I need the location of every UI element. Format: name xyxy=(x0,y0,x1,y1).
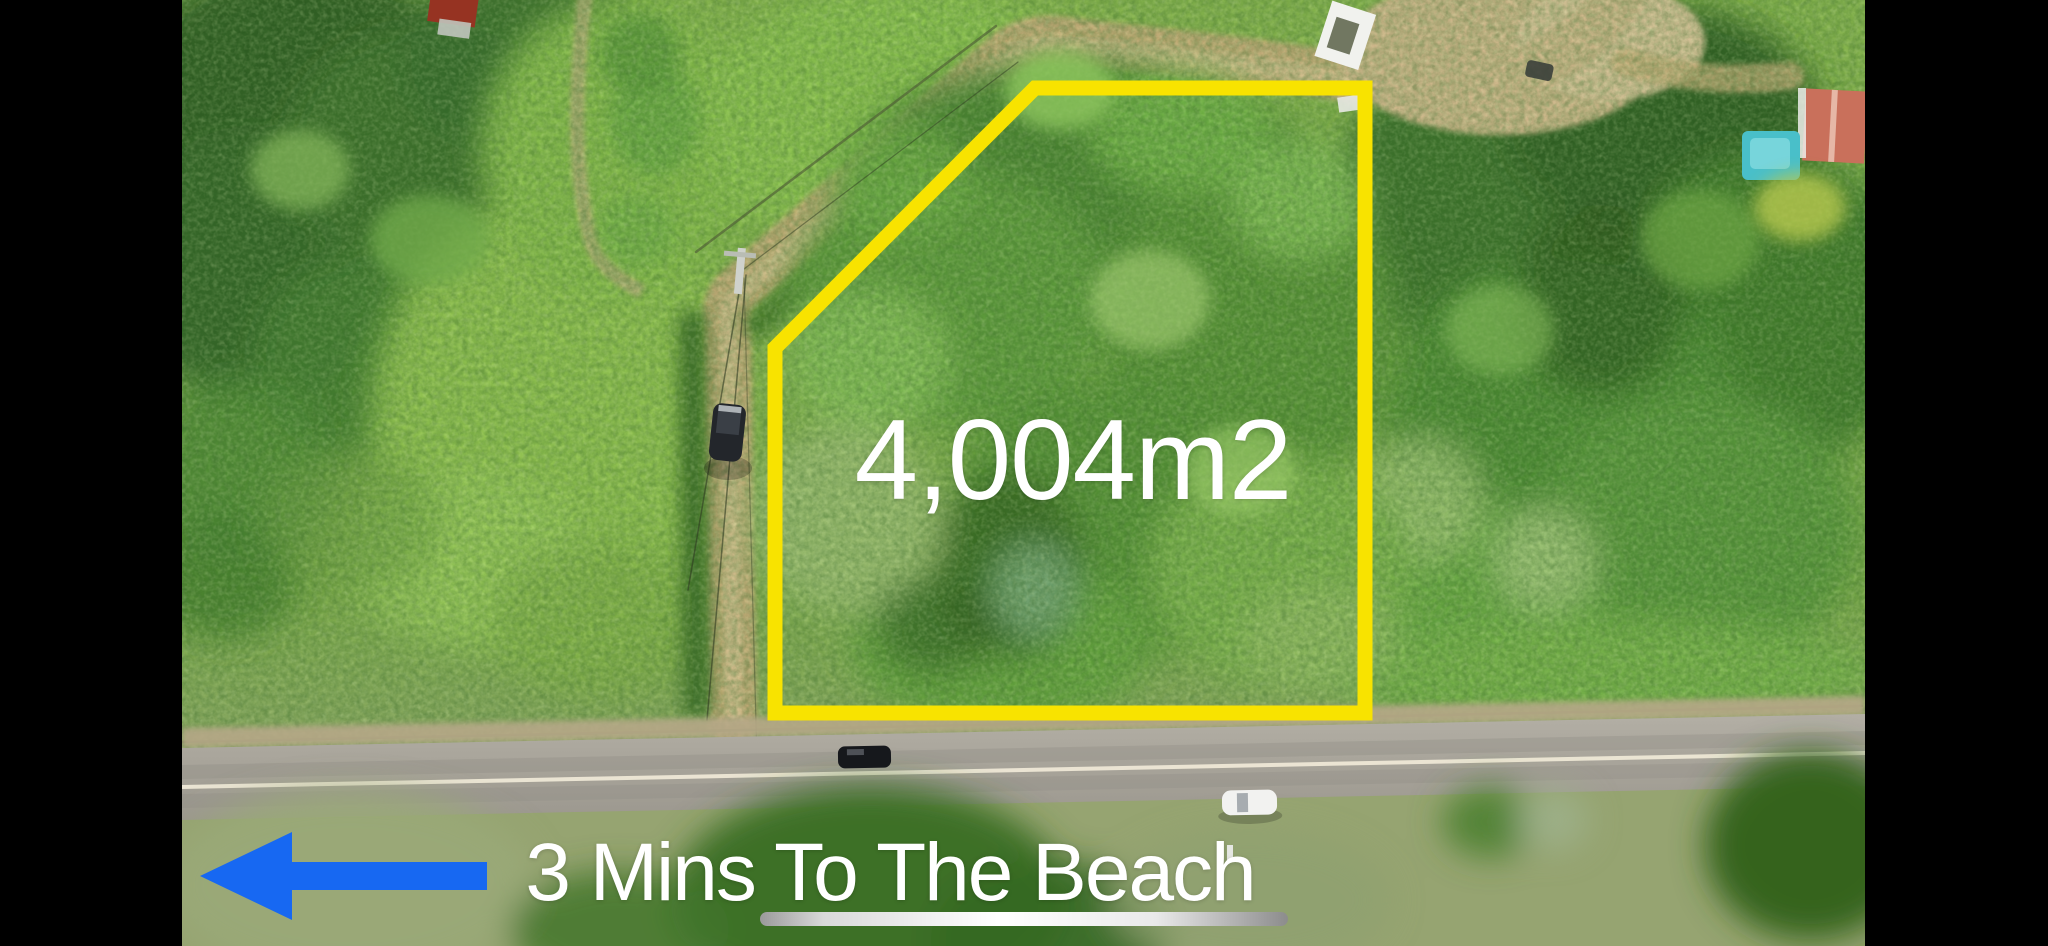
suv-on-lane xyxy=(708,402,747,462)
swimming-pool xyxy=(1742,131,1800,180)
salmon-roof-house xyxy=(1798,88,1868,164)
car-on-road xyxy=(838,746,891,769)
beach-caption: 3 Mins To The Beach xyxy=(525,832,1254,914)
listing-screenshot: 4,004m2 3 Mins To The Beach xyxy=(0,0,2048,946)
white-car-parked xyxy=(1218,789,1283,824)
palm-tree xyxy=(1754,173,1846,241)
area-label: 4,004m2 xyxy=(855,404,1292,518)
